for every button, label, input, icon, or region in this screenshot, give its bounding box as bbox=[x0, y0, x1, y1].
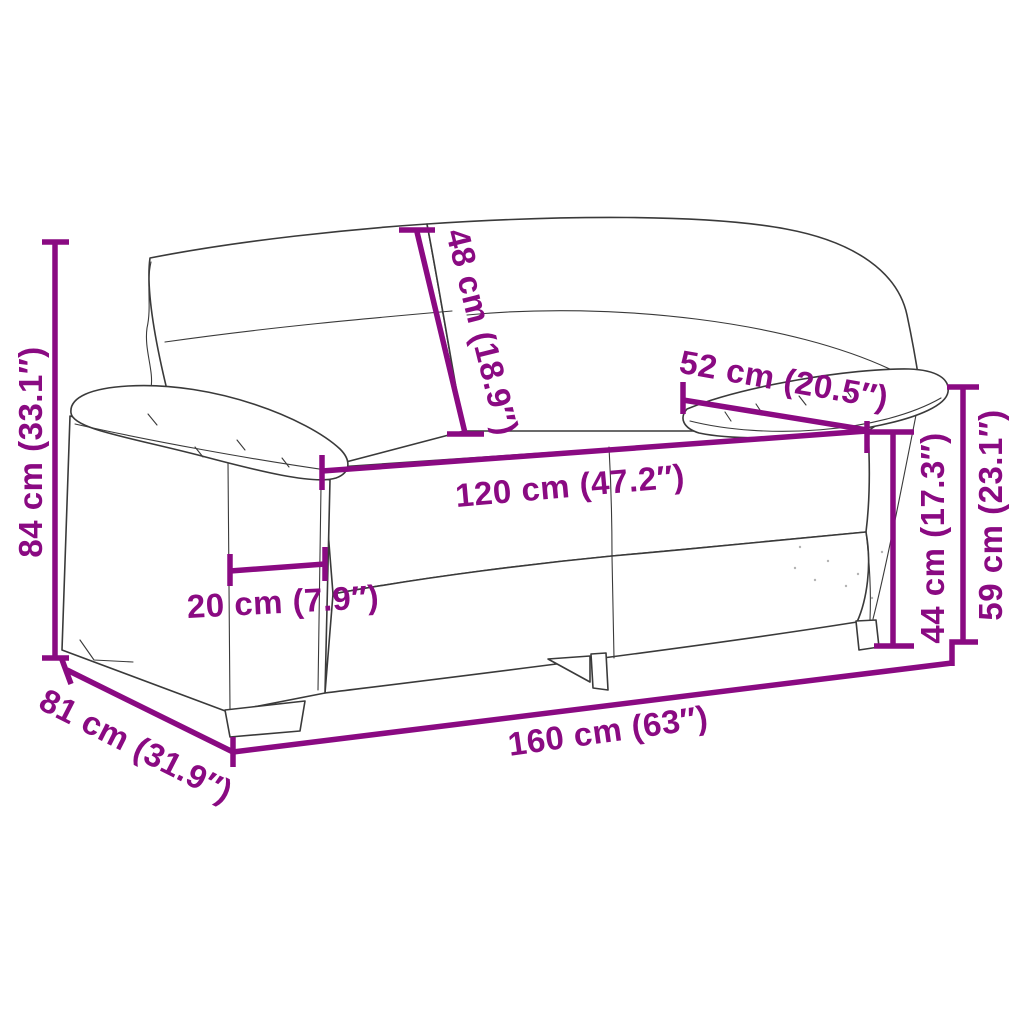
dim-label-overall-height: 84 cm (33.1″) bbox=[12, 346, 50, 557]
sofa-left-armrest bbox=[62, 386, 348, 712]
sofa-dimension-drawing bbox=[0, 0, 1024, 1024]
dimension-diagram: 84 cm (33.1″) 48 cm (18.9″) 52 cm (20.5″… bbox=[0, 0, 1024, 1024]
dim-label-armrest-height: 59 cm (23.1″) bbox=[972, 409, 1010, 620]
dim-label-seat-height: 44 cm (17.3″) bbox=[914, 432, 952, 643]
